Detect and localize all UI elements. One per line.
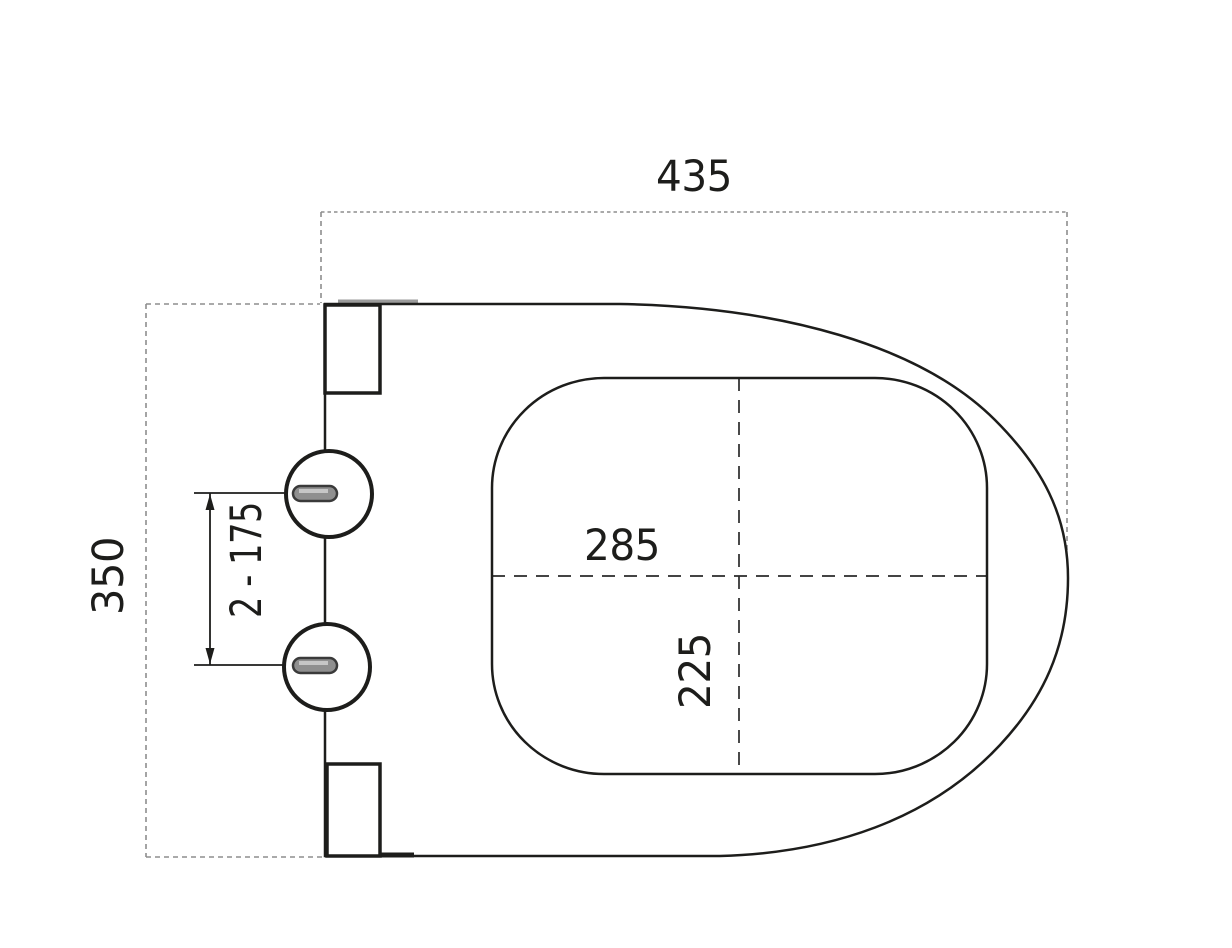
drawing-page: 435 350 2 - 175 285 225 [0, 0, 1232, 948]
mount-tab-top [325, 305, 380, 393]
opening-depth-label: 225 [671, 633, 721, 709]
dimension-arrow-up [206, 494, 215, 510]
hinge-spacing-label: 2 - 175 [222, 502, 272, 618]
overall-width-label: 435 [656, 152, 732, 202]
seat-technical-drawing: 435 350 2 - 175 285 225 [0, 0, 1232, 948]
mount-tab-bottom [327, 764, 380, 856]
overall-depth-label: 350 [84, 537, 134, 615]
opening-centerlines [492, 378, 987, 775]
seat-outline-group [325, 304, 1068, 856]
dimension-arrow-down [206, 648, 215, 664]
mount-tabs [325, 305, 380, 856]
opening-width-label: 285 [584, 521, 660, 571]
hinge-slot-top [293, 486, 337, 501]
hinge-slot-bottom [293, 658, 337, 673]
dimension-labels: 435 350 2 - 175 285 225 [84, 152, 732, 709]
